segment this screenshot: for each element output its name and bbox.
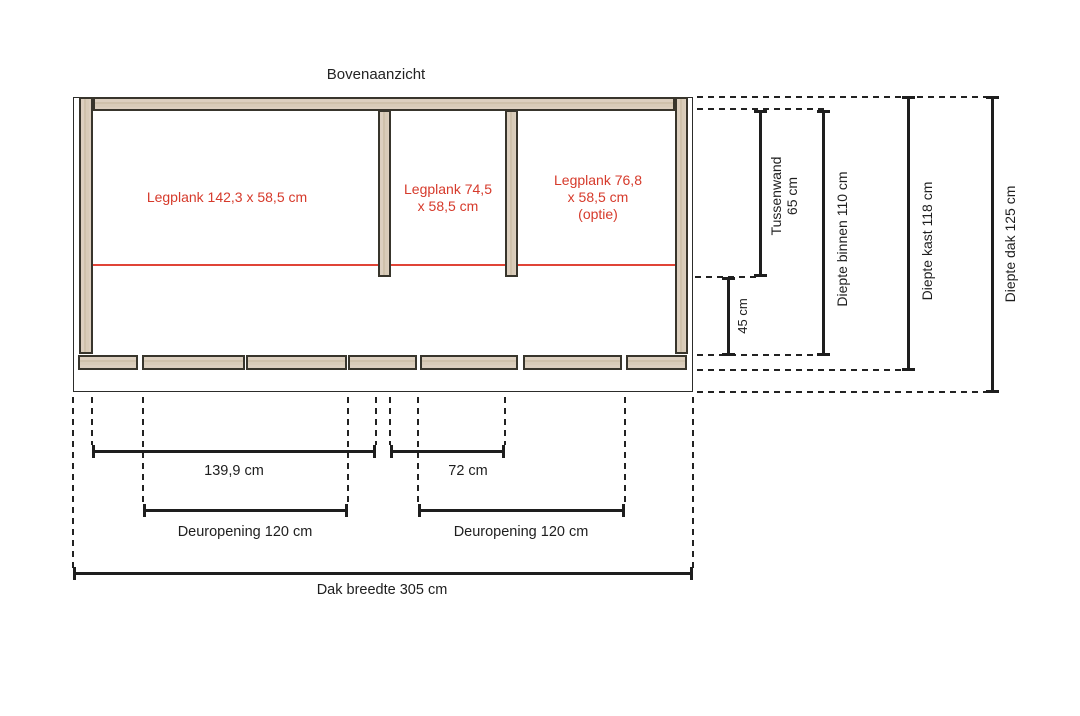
front-wall-plank (246, 355, 347, 370)
bovenaanzicht-diagram: Bovenaanzicht Legplank 142,3 x 58,5 cm L… (0, 0, 1080, 716)
dim-label-door-left: Deuropening 120 cm (178, 524, 313, 540)
dim-bar-diepte-kast (907, 96, 910, 371)
extension-line-partition2 (504, 397, 506, 445)
extension-line-door2-right (624, 397, 626, 503)
back-wall-beam (93, 97, 675, 111)
left-wall-post (79, 97, 93, 354)
front-wall-plank (523, 355, 622, 370)
dim-bar-diepte-dak (991, 96, 994, 393)
front-wall-plank (348, 355, 417, 370)
extension-line-partition1-b (389, 397, 391, 445)
shelf-label-3: Legplank 76,8 x 58,5 cm (optie) (554, 172, 642, 223)
front-wall-plank (78, 355, 138, 370)
extension-line-roof-front (697, 391, 994, 393)
front-wall-plank (142, 355, 245, 370)
extension-line-roof-right (692, 397, 694, 569)
drawing-title: Bovenaanzicht (327, 66, 425, 83)
dim-label-shelf-mid: 72 cm (448, 463, 488, 479)
dim-label-diepte-kast: Diepte kast 118 cm (919, 182, 935, 301)
extension-line-roof-left (72, 397, 74, 569)
dim-bar-45cm (727, 277, 730, 356)
dim-label-door-right: Deuropening 120 cm (454, 524, 589, 540)
front-wall-plank (420, 355, 518, 370)
extension-line-inner-left (91, 397, 93, 445)
dim-bar-door-left (143, 509, 348, 512)
dim-bar-roof-width (73, 572, 693, 575)
dim-bar-shelf-mid (390, 450, 505, 453)
shelf-label-1: Legplank 142,3 x 58,5 cm (147, 189, 307, 206)
right-wall-post (675, 97, 688, 354)
dim-bar-door-right (418, 509, 625, 512)
dim-label-45cm: 45 cm (735, 298, 751, 333)
dim-label-roof-width: Dak breedte 305 cm (317, 582, 448, 598)
extension-line-cabinet-front (697, 369, 910, 371)
extension-line-inner-front (697, 354, 825, 356)
extension-line-partition1-a (375, 397, 377, 445)
extension-line-roof-back (697, 96, 993, 98)
partition-post-2 (505, 110, 518, 277)
dim-label-shelf-left: 139,9 cm (204, 463, 264, 479)
dim-label-diepte-binnen: Diepte binnen 110 cm (834, 171, 850, 306)
dim-label-tussenwand: Tussenwand 65 cm (768, 157, 800, 236)
dim-bar-tussenwand (759, 110, 762, 277)
dim-bar-diepte-binnen (822, 110, 825, 356)
front-wall-plank (626, 355, 687, 370)
dim-bar-shelf-left (92, 450, 376, 453)
dim-label-diepte-dak: Diepte dak 125 cm (1002, 186, 1018, 303)
shelf-label-2: Legplank 74,5 x 58,5 cm (404, 181, 492, 215)
partition-post-1 (378, 110, 391, 277)
